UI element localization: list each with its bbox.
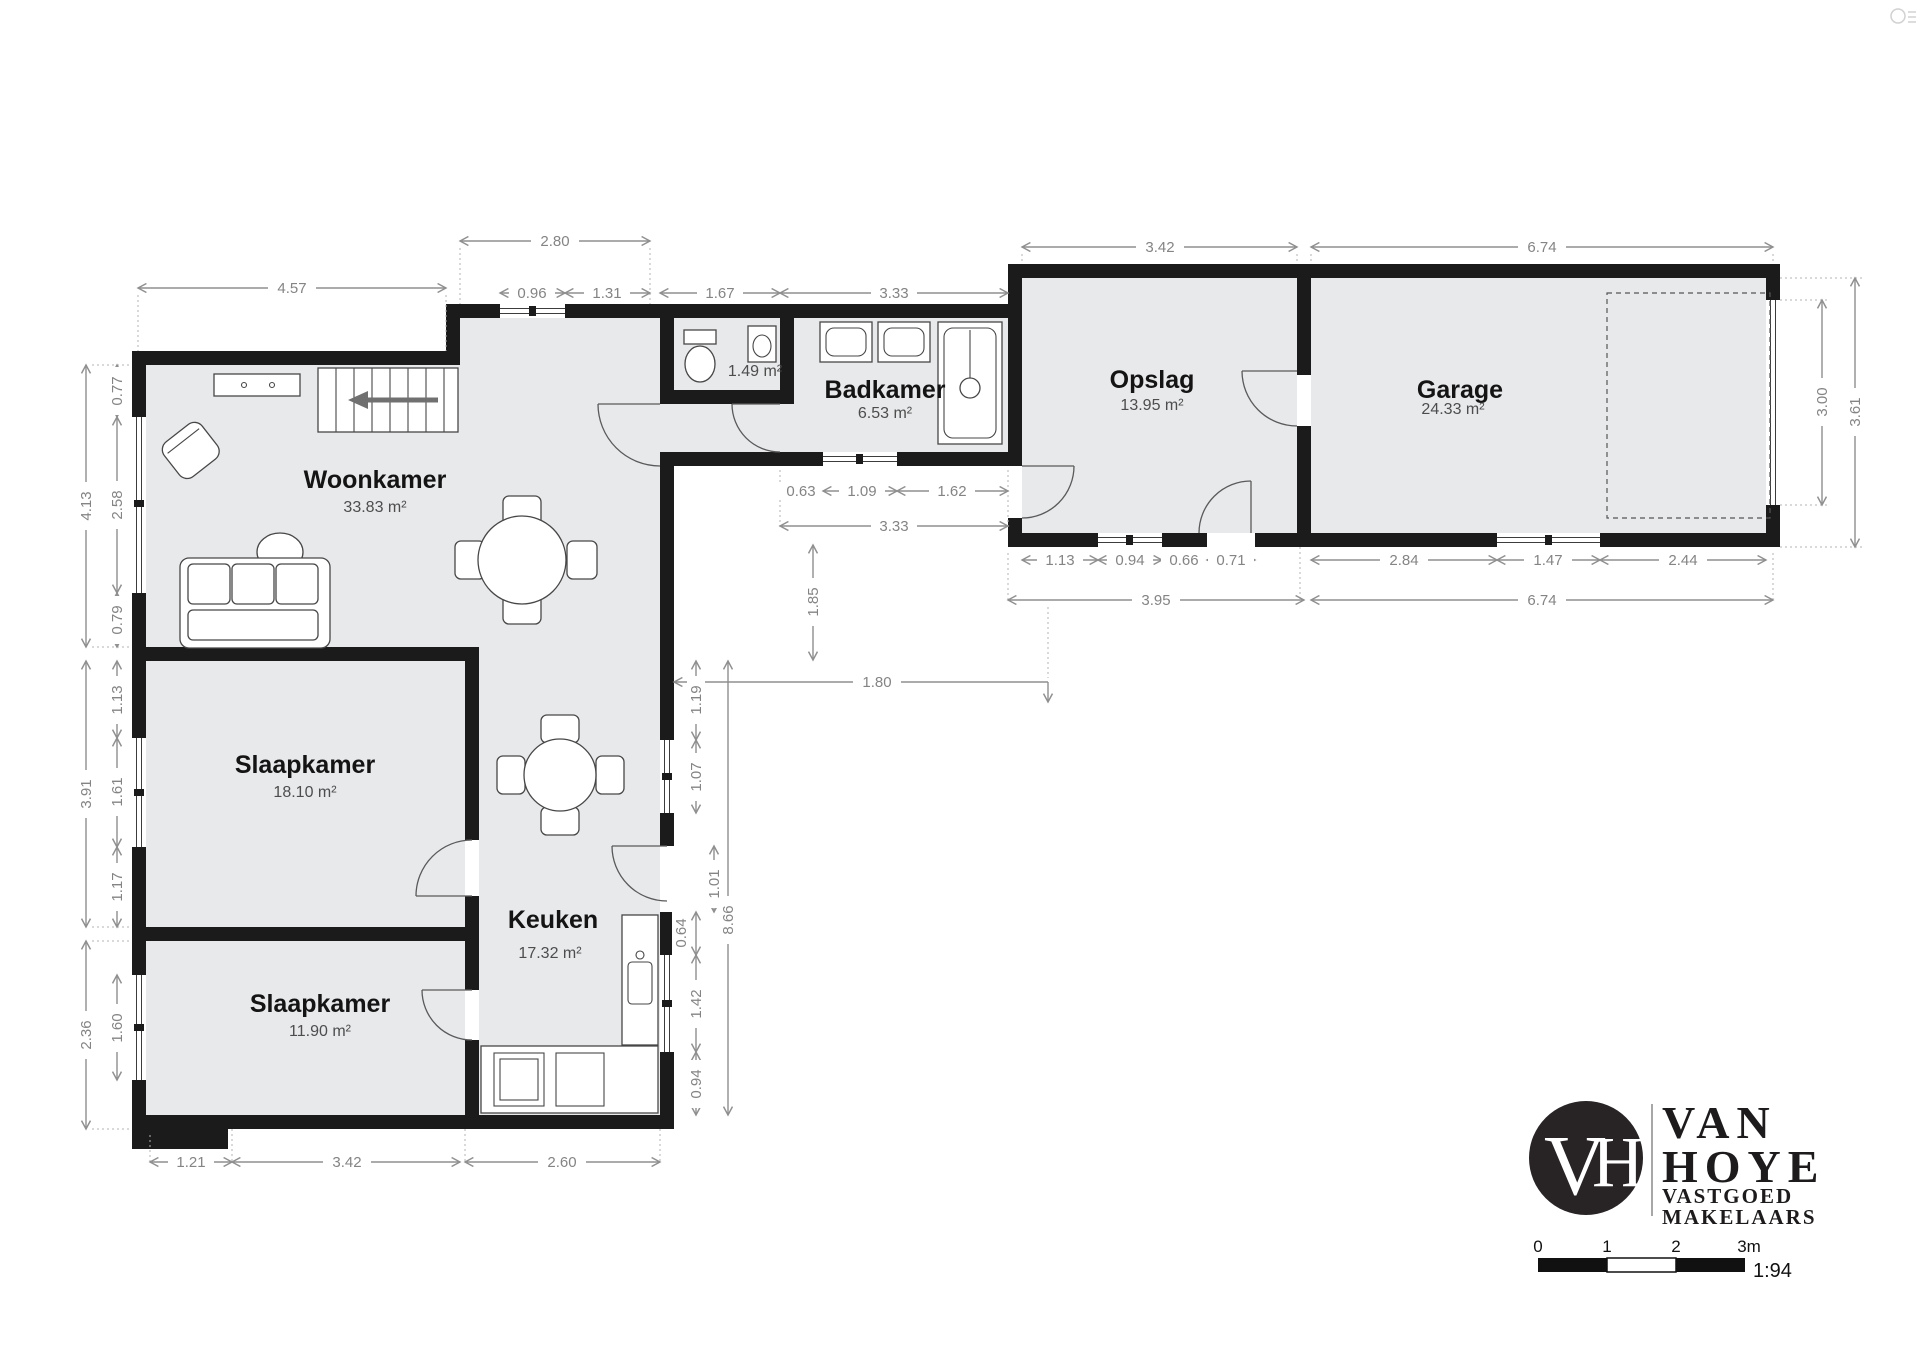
room-area: 11.90 m²: [289, 1023, 352, 1040]
dim: 3.95: [1008, 591, 1304, 609]
chair: [567, 541, 597, 579]
room-title: Slaapkamer: [235, 751, 376, 779]
window: [132, 975, 146, 1080]
svg-text:1.31: 1.31: [592, 285, 621, 302]
svg-text:0.94: 0.94: [1115, 552, 1144, 569]
dim: 1.67: [660, 284, 780, 302]
window: [132, 417, 146, 593]
scale-ratio: 1:94: [1753, 1260, 1792, 1282]
dim: 3.33: [780, 517, 1008, 535]
room-title: Opslag: [1110, 366, 1195, 394]
room-area: 18.10 m²: [273, 784, 337, 801]
window: [660, 955, 674, 1052]
dim: 6.74: [1311, 238, 1773, 256]
wall-segment: [1162, 533, 1207, 547]
svg-text:8.66: 8.66: [720, 905, 737, 934]
dim: 2.84: [1311, 551, 1497, 569]
dim: 0.64: [672, 909, 696, 957]
wall-segment: [660, 466, 674, 740]
svg-text:1.13: 1.13: [1045, 552, 1074, 569]
wall-segment: [660, 912, 674, 955]
svg-text:1.13: 1.13: [109, 685, 126, 714]
wall-segment: [660, 304, 674, 404]
svg-text:3.33: 3.33: [879, 518, 908, 535]
svg-text:3.33: 3.33: [879, 285, 908, 302]
scale-tick: 3m: [1737, 1237, 1761, 1256]
svg-text:0.64: 0.64: [673, 918, 690, 947]
wall-segment: [1600, 533, 1780, 547]
scale-tick: 0: [1533, 1237, 1542, 1256]
dim: 1.42: [687, 955, 705, 1052]
svg-text:3.42: 3.42: [332, 1154, 361, 1171]
dim: 6.74: [1311, 591, 1773, 609]
wall-segment: [1255, 533, 1497, 547]
svg-text:1.62: 1.62: [937, 483, 966, 500]
dim: 0.94: [1098, 551, 1162, 569]
wall-segment: [446, 304, 460, 365]
floor-garage: [1311, 278, 1766, 533]
svg-text:2.58: 2.58: [109, 490, 126, 519]
garage-door: [1766, 300, 1780, 505]
wall-segment: [465, 896, 479, 990]
window: [1497, 533, 1600, 547]
svg-text:3.61: 3.61: [1847, 397, 1864, 426]
sofa: [180, 558, 330, 648]
svg-text:1.42: 1.42: [688, 989, 705, 1018]
chair: [497, 756, 525, 794]
svg-text:2.84: 2.84: [1389, 552, 1418, 569]
wall-segment: [1008, 518, 1022, 533]
dim: 2.80: [460, 232, 650, 250]
wall-segment: [1766, 264, 1780, 300]
window: [132, 738, 146, 847]
svg-text:2.36: 2.36: [78, 1020, 95, 1049]
wall-segment: [1008, 533, 1098, 547]
dim: 1.13: [1022, 551, 1098, 569]
dim: 3.42: [232, 1153, 460, 1171]
svg-text:1.61: 1.61: [109, 777, 126, 806]
dim: 1.47: [1497, 551, 1600, 569]
dim: 1.19: [687, 661, 705, 740]
dim: 1.09: [823, 482, 897, 500]
room-area: 17.32 m²: [518, 945, 582, 962]
dim: 1.60: [108, 975, 126, 1080]
svg-text:0.63: 0.63: [786, 483, 815, 500]
svg-text:3.42: 3.42: [1145, 239, 1174, 256]
svg-text:0.66: 0.66: [1169, 552, 1198, 569]
room-area: 6.53 m²: [858, 405, 913, 422]
wall-segment: [132, 1129, 228, 1149]
dim: 1.62: [897, 482, 1008, 500]
dim: 0.94: [687, 1052, 705, 1115]
floor-plan-page: 4.57 2.80 0.96 1.31 1.67 3.33 3.42 6.74 …: [0, 0, 1920, 1358]
svg-text:3.00: 3.00: [1814, 387, 1831, 416]
svg-text:0.77: 0.77: [109, 376, 126, 405]
dim: 0.77: [108, 365, 126, 417]
dim: 4.13: [77, 365, 95, 647]
shower: [938, 322, 1002, 444]
wall-segment: [132, 927, 479, 941]
svg-text:2.44: 2.44: [1668, 552, 1697, 569]
wall-segment: [132, 1115, 674, 1129]
svg-text:0.79: 0.79: [109, 605, 126, 634]
dim: 3.42: [1022, 238, 1297, 256]
svg-text:1.80: 1.80: [862, 674, 891, 691]
scale-segment: [1538, 1258, 1607, 1272]
svg-text:3.91: 3.91: [78, 779, 95, 808]
brand-subtitle-line2: MAKELAARS: [1662, 1205, 1817, 1229]
wall-segment: [674, 390, 780, 404]
svg-text:2.80: 2.80: [540, 233, 569, 250]
room-title: Slaapkamer: [250, 990, 391, 1018]
dim: 1.80: [674, 673, 1048, 702]
svg-text:1.47: 1.47: [1533, 552, 1562, 569]
svg-text:0.96: 0.96: [517, 285, 546, 302]
dim: 1.07: [687, 740, 705, 813]
svg-text:0.94: 0.94: [688, 1069, 705, 1098]
svg-text:0.71: 0.71: [1216, 552, 1245, 569]
dim: 1.17: [108, 847, 126, 927]
dim: 1.31: [565, 284, 650, 302]
window: [660, 740, 674, 813]
room-title: Badkamer: [825, 376, 946, 404]
dim: 1.85: [804, 545, 822, 660]
dim: 0.96: [500, 284, 565, 302]
scale-segment: [1676, 1258, 1745, 1272]
scale-tick: 1: [1602, 1237, 1611, 1256]
window: [1098, 533, 1162, 547]
wall-segment: [1008, 264, 1022, 466]
room-title: Garage: [1417, 376, 1503, 404]
svg-text:1.17: 1.17: [109, 872, 126, 901]
dim: 2.36: [77, 941, 95, 1129]
wall-segment: [465, 1040, 479, 1115]
washbasin: [748, 326, 776, 362]
dim: 3.91: [77, 661, 95, 927]
svg-text:1.85: 1.85: [805, 587, 822, 616]
dim: 1.13: [108, 661, 126, 738]
room-title: Woonkamer: [304, 466, 447, 494]
dim: 2.44: [1600, 551, 1766, 569]
watermark-icon: [1891, 9, 1916, 23]
svg-text:2.60: 2.60: [547, 1154, 576, 1171]
svg-text:1.07: 1.07: [688, 762, 705, 791]
dim: 0.66: [1161, 551, 1207, 569]
room-area: 33.83 m²: [343, 499, 407, 516]
svg-text:6.74: 6.74: [1527, 592, 1556, 609]
stairs: [318, 368, 458, 432]
wall-segment: [132, 647, 479, 661]
window: [500, 304, 565, 318]
room-area: 24.33 m²: [1421, 401, 1485, 418]
toilet: [684, 330, 716, 382]
wall-segment: [465, 647, 479, 840]
svg-text:4.13: 4.13: [78, 491, 95, 520]
wall-segment: [1008, 264, 1780, 278]
dim: 0.63: [778, 482, 824, 500]
chair: [596, 756, 624, 794]
dim: 0.71: [1207, 551, 1255, 569]
sideboard: [214, 374, 300, 396]
svg-text:1.19: 1.19: [688, 685, 705, 714]
wall-segment: [660, 1052, 674, 1115]
svg-text:1.60: 1.60: [109, 1013, 126, 1042]
room-title: Keuken: [508, 906, 598, 934]
svg-text:4.57: 4.57: [277, 280, 306, 297]
wall-segment: [1297, 264, 1311, 375]
scale-tick: 2: [1671, 1237, 1680, 1256]
scale-segment: [1607, 1258, 1676, 1272]
wall-segment: [780, 304, 794, 404]
dim: 3.33: [780, 284, 1008, 302]
svg-text:1.09: 1.09: [847, 483, 876, 500]
dim: 2.60: [465, 1153, 660, 1171]
wall-segment: [1297, 426, 1311, 533]
scale-bar: 0 1 2 3m 1:94: [1533, 1237, 1792, 1282]
room-area: 1.49 m²: [728, 363, 783, 380]
dim: 3.00: [1813, 300, 1831, 505]
svg-text:1.21: 1.21: [176, 1154, 205, 1171]
room-area: 13.95 m²: [1120, 397, 1184, 414]
dim: 3.61: [1846, 278, 1864, 547]
svg-text:1.67: 1.67: [705, 285, 734, 302]
window: [823, 452, 897, 466]
wall-segment: [660, 813, 674, 846]
floor-plan: 4.57 2.80 0.96 1.31 1.67 3.33 3.42 6.74 …: [0, 0, 1920, 1358]
svg-text:1.01: 1.01: [706, 869, 723, 898]
svg-text:6.74: 6.74: [1527, 239, 1556, 256]
logo-initial-h: H: [1592, 1122, 1644, 1202]
svg-text:3.95: 3.95: [1141, 592, 1170, 609]
dim: 4.57: [138, 279, 446, 297]
dim: 1.61: [108, 738, 126, 847]
dim: 1.21: [150, 1153, 232, 1171]
dim: 2.58: [108, 417, 126, 593]
dim: 0.79: [108, 593, 126, 647]
branding: V H VAN HOYE VASTGOED MAKELAARS: [1529, 1097, 1825, 1229]
wall-segment: [132, 351, 460, 365]
